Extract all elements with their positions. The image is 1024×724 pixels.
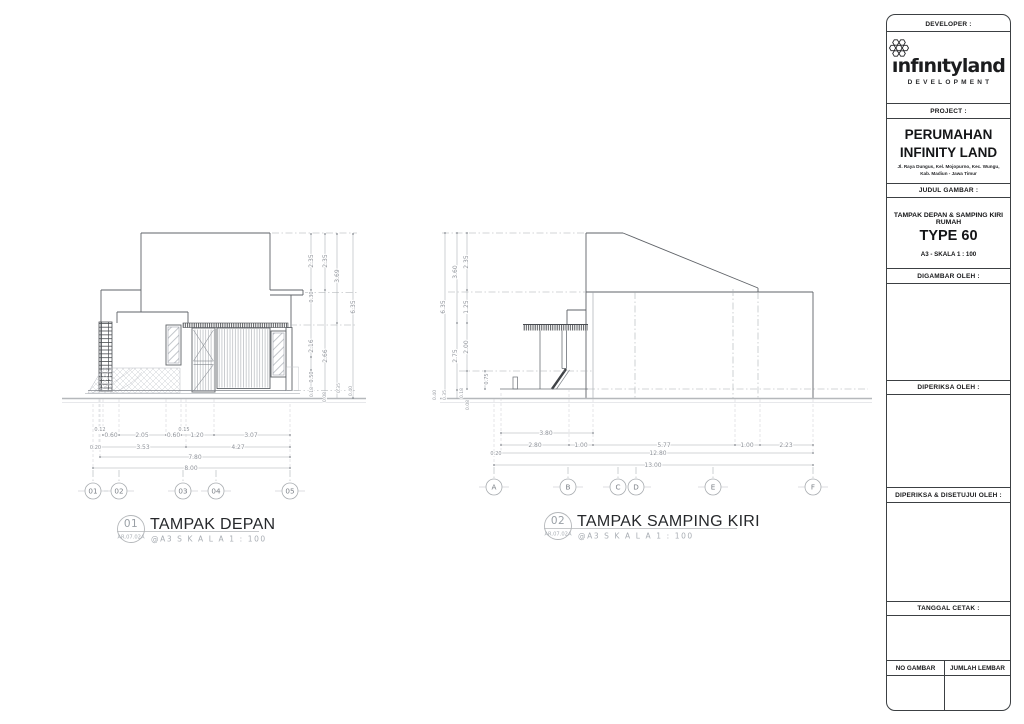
project-address-line2: Kab. Madiun - Jawa Timur [887, 171, 1010, 176]
dim-label: 0.20 [90, 445, 101, 451]
front-elevation-drawing [62, 233, 366, 403]
entry-door [192, 328, 215, 392]
grid-bubble: B [553, 479, 583, 495]
dim-label: 0.40 [432, 390, 438, 400]
dim-label: 6.35 [440, 300, 447, 314]
figure-number: 02 [551, 515, 565, 527]
no-gambar-label: NO GAMBAR [887, 661, 945, 675]
svg-text:01: 01 [88, 487, 97, 496]
grid-bubble: 04 [201, 483, 231, 499]
grid-bubble: 02 [104, 483, 134, 499]
figure-scale: @A3 S K A L A 1 : 100 [578, 532, 694, 541]
dim-label: 1.00 [574, 442, 588, 449]
judul-gambar-info: TAMPAK DEPAN & SAMPING KIRI RUMAH TYPE 6… [887, 198, 1010, 268]
dim-label: 12.80 [649, 450, 666, 457]
side-grid-bubbles: A B C D E F [479, 467, 828, 495]
dim-label: 0.18 [309, 387, 315, 397]
dim-label: 0.18 [459, 388, 465, 398]
jumlah-lembar-cell [945, 676, 1010, 711]
jumlah-lembar-label: JUMLAH LEMBAR [945, 661, 1010, 675]
dim-label: 0.60 [167, 432, 181, 439]
drawing-sheet: 0.12 0.15 0.60 2.05 0.60 1.20 3.07 0.20 … [0, 0, 1024, 724]
grid-bubble: E [698, 479, 728, 495]
svg-text:C: C [615, 483, 620, 492]
drawing-title-line: TAMPAK DEPAN & SAMPING KIRI RUMAH [887, 212, 1010, 226]
dim-label: 2.05 [135, 432, 149, 439]
dim-label: 0.35 [442, 390, 448, 400]
grid-bubble: 05 [275, 483, 305, 499]
grid-bubble: A [479, 479, 509, 495]
figure-code: AR.07.02A [544, 532, 571, 538]
grid-bubble: C [603, 479, 626, 495]
figure-scale: @A3 S K A L A 1 : 100 [151, 535, 267, 544]
dim-label: 0.20 [490, 451, 501, 457]
elevations-canvas: 0.12 0.15 0.60 2.05 0.60 1.20 3.07 0.20 … [0, 0, 1024, 724]
diperiksa-oleh-space [887, 395, 1010, 487]
logo-subtitle: DEVELOPMENT [887, 79, 1010, 86]
svg-text:D: D [633, 483, 639, 492]
svg-text:04: 04 [211, 487, 221, 496]
dim-label: 0.50 [309, 371, 315, 382]
dim-label: 2.23 [779, 442, 793, 449]
grid-bubble: 01 [78, 483, 108, 499]
title-block: DEVELOPER : ınfınıtyland DEVELOPMENT PRO… [886, 14, 1011, 711]
slatted-wall-panel [217, 328, 270, 389]
dim-label: 2.66 [322, 349, 329, 363]
dim-label: 8.00 [184, 465, 198, 472]
dim-label: 3.69 [334, 269, 341, 283]
side-dimension-lines [444, 232, 814, 466]
window-left [166, 325, 181, 365]
tanggal-cetak-space [887, 616, 1010, 660]
dim-label: 0.08 [465, 400, 471, 410]
disetujui-oleh-space [887, 503, 1010, 601]
entry-steps [552, 369, 570, 389]
dim-label: 0.40 [348, 386, 354, 396]
grid-bubble: 03 [168, 483, 198, 499]
dim-label: 1.20 [190, 432, 204, 439]
sheet-number-cells [887, 676, 1010, 711]
dim-label: 3.53 [136, 444, 150, 451]
dim-label: 1.00 [740, 442, 754, 449]
dim-label: 0.60 [104, 432, 118, 439]
pergola-roof [523, 325, 588, 331]
sheet-scale: A3 - SKALA 1 : 100 [887, 251, 1010, 258]
logo-wordmark: ınfınıtyland [887, 55, 1010, 77]
dim-label: 0.08 [322, 392, 328, 402]
paving-hatch [88, 368, 180, 393]
side-figure-label: 02 AR.07.02A TAMPAK SAMPING KIRI @A3 S K… [544, 513, 760, 541]
dim-label: 3.07 [244, 432, 258, 439]
house-type: TYPE 60 [887, 228, 1010, 244]
sheet-number-header: NO GAMBAR JUMLAH LEMBAR [887, 660, 1010, 676]
svg-text:A: A [492, 483, 497, 492]
svg-text:05: 05 [285, 487, 294, 496]
side-elevation-drawing [440, 233, 872, 403]
project-address-line1: Jl. Raya Dungus, Kel. Mojopurno, Kec. Wu… [887, 164, 1010, 169]
dim-label: 7.80 [188, 454, 202, 461]
porch-roof-fascia [183, 323, 288, 328]
figure-title: TAMPAK DEPAN [150, 516, 275, 533]
dim-label: 2.80 [528, 442, 542, 449]
fence-post [513, 377, 518, 389]
figure-code: AR.07.02A [117, 535, 144, 541]
dimension-ticks [444, 232, 814, 466]
svg-text:E: E [711, 483, 716, 492]
dim-label: 0.75 [484, 373, 490, 384]
right-pillar [286, 328, 292, 391]
svg-text:F: F [811, 483, 815, 492]
developer-label: DEVELOPER : [887, 15, 1010, 32]
dim-label: 2.75 [452, 349, 459, 363]
disetujui-oleh-label: DIPERIKSA & DISETUJUI OLEH : [887, 487, 1010, 503]
figure-title: TAMPAK SAMPING KIRI [577, 513, 760, 530]
no-gambar-cell [887, 676, 945, 711]
dim-label: 0.30 [309, 291, 315, 302]
front-grid-bubbles: 01 02 03 04 05 [78, 470, 305, 499]
dim-label: 5.77 [657, 442, 671, 449]
grid-bubble: F [798, 479, 828, 495]
figure-number: 01 [124, 518, 138, 530]
front-figure-label: 01 AR.07.02A TAMPAK DEPAN @A3 S K A L A … [117, 516, 275, 544]
diperiksa-oleh-label: DIPERIKSA OLEH : [887, 380, 1010, 396]
window-right [271, 331, 286, 377]
project-name-line2: INFINITY LAND [887, 145, 1010, 160]
dim-label: 2.35 [463, 255, 470, 269]
digambar-oleh-space [887, 284, 1010, 380]
svg-text:02: 02 [114, 487, 123, 496]
dim-label: 1.25 [463, 300, 470, 314]
dim-label: 2.16 [308, 339, 315, 353]
dim-label: 6.35 [350, 300, 357, 314]
svg-text:03: 03 [178, 487, 187, 496]
grid-bubble: D [628, 479, 651, 495]
dim-label: 3.80 [539, 430, 553, 437]
dim-label: 2.35 [308, 254, 315, 268]
dim-label: 13.00 [644, 462, 661, 469]
tanggal-cetak-label: TANGGAL CETAK : [887, 601, 1010, 617]
judul-gambar-label: JUDUL GAMBAR : [887, 183, 1010, 199]
svg-text:B: B [566, 483, 571, 492]
developer-logo: ınfınıtyland DEVELOPMENT [887, 32, 1010, 103]
dim-label: 2.35 [322, 254, 329, 268]
project-name-line1: PERUMAHAN [887, 127, 1010, 142]
digambar-oleh-label: DIGAMBAR OLEH : [887, 268, 1010, 284]
dim-label: 3.60 [452, 265, 459, 279]
side-dimension-labels: 6.35 3.60 2.75 2.35 1.25 2.00 0.75 0.40 … [432, 255, 793, 469]
dim-label: 2.00 [463, 340, 470, 354]
dim-label: 0.35 [336, 383, 342, 393]
project-label: PROJECT : [887, 103, 1010, 119]
dim-label: 4.27 [231, 444, 245, 451]
project-info: PERUMAHAN INFINITY LAND Jl. Raya Dungus,… [887, 119, 1010, 183]
